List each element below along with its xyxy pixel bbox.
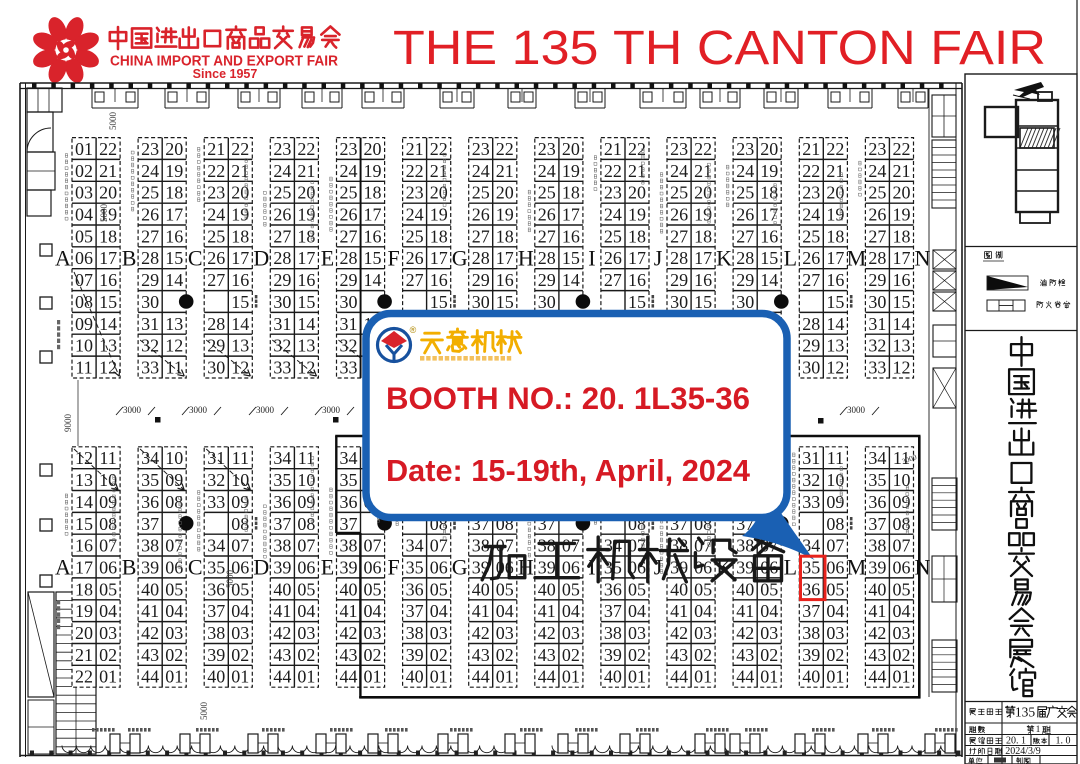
svg-text:15: 15 (430, 292, 448, 312)
svg-text:17: 17 (231, 248, 249, 268)
svg-text:25: 25 (273, 183, 291, 203)
svg-text:29: 29 (802, 336, 820, 356)
svg-text:02: 02 (364, 645, 382, 665)
svg-text:37: 37 (604, 601, 622, 621)
svg-text:27: 27 (868, 226, 886, 246)
svg-text:25: 25 (604, 226, 622, 246)
svg-text:18: 18 (628, 226, 646, 246)
svg-text:K: K (716, 246, 732, 271)
svg-text:17: 17 (430, 248, 448, 268)
svg-text:23: 23 (736, 139, 754, 159)
svg-text:D: D (253, 246, 269, 271)
svg-text:M: M (847, 555, 867, 580)
svg-text:J: J (654, 246, 663, 271)
svg-text:37: 37 (273, 514, 291, 534)
svg-text:01: 01 (364, 667, 382, 687)
svg-text:10: 10 (231, 470, 249, 490)
svg-text:12: 12 (165, 336, 183, 356)
svg-text:03: 03 (826, 623, 844, 643)
svg-text:09: 09 (165, 470, 183, 490)
svg-text:07: 07 (893, 536, 911, 556)
svg-text:3000: 3000 (123, 405, 142, 415)
svg-text:17: 17 (75, 557, 93, 577)
svg-text:12: 12 (75, 448, 93, 468)
svg-text:24: 24 (868, 161, 886, 181)
svg-text:04: 04 (826, 601, 844, 621)
svg-text:41: 41 (273, 601, 291, 621)
svg-text:06: 06 (364, 557, 382, 577)
svg-text:14: 14 (826, 314, 844, 334)
svg-text:26: 26 (472, 205, 490, 225)
svg-text:04: 04 (75, 205, 93, 225)
svg-text:20: 20 (562, 139, 580, 159)
svg-text:18: 18 (75, 579, 93, 599)
svg-text:N: N (915, 246, 931, 271)
svg-text:35: 35 (207, 557, 225, 577)
svg-text:09: 09 (75, 314, 93, 334)
svg-text:18: 18 (562, 183, 580, 203)
svg-text:21: 21 (604, 139, 622, 159)
svg-text:25: 25 (141, 183, 159, 203)
svg-text:05: 05 (99, 579, 117, 599)
svg-text:30: 30 (472, 292, 490, 312)
svg-text:44: 44 (472, 667, 490, 687)
svg-text:04: 04 (364, 601, 382, 621)
svg-text:22: 22 (231, 139, 249, 159)
svg-text:22: 22 (496, 139, 514, 159)
svg-text:5000: 5000 (99, 204, 109, 223)
svg-text:M: M (847, 246, 867, 271)
svg-text:24: 24 (538, 161, 556, 181)
svg-text:05: 05 (694, 579, 712, 599)
svg-text:29: 29 (273, 270, 291, 290)
svg-text:28: 28 (472, 248, 490, 268)
svg-text:26: 26 (207, 248, 225, 268)
svg-text:06: 06 (826, 557, 844, 577)
svg-text:11: 11 (827, 448, 844, 468)
svg-text:23: 23 (141, 139, 159, 159)
svg-text:3000: 3000 (189, 405, 208, 415)
svg-text:04: 04 (760, 601, 778, 621)
svg-text:40: 40 (207, 667, 225, 687)
svg-text:26: 26 (141, 205, 159, 225)
svg-text:19: 19 (75, 601, 93, 621)
svg-text:40: 40 (538, 579, 556, 599)
svg-text:22: 22 (297, 139, 315, 159)
svg-text:44: 44 (538, 667, 556, 687)
svg-text:43: 43 (273, 645, 291, 665)
svg-text:17: 17 (628, 248, 646, 268)
svg-text:24: 24 (141, 161, 159, 181)
svg-text:24: 24 (736, 161, 754, 181)
svg-text:01: 01 (760, 667, 778, 687)
svg-text:F: F (387, 555, 399, 580)
svg-text:16: 16 (826, 270, 844, 290)
svg-text:14: 14 (75, 492, 93, 512)
svg-text:25: 25 (207, 226, 225, 246)
svg-text:02: 02 (297, 645, 315, 665)
svg-text:20. 1: 20. 1 (1006, 736, 1026, 747)
svg-text:15: 15 (75, 514, 93, 534)
svg-text:H: H (518, 246, 534, 271)
svg-text:Since 1957: Since 1957 (193, 67, 258, 81)
svg-text:32: 32 (207, 470, 225, 490)
svg-text:03: 03 (165, 623, 183, 643)
svg-text:29: 29 (736, 270, 754, 290)
svg-text:43: 43 (736, 645, 754, 665)
svg-text:37: 37 (802, 601, 820, 621)
svg-text:02: 02 (628, 645, 646, 665)
svg-text:I: I (588, 246, 595, 271)
svg-text:35: 35 (273, 470, 291, 490)
svg-text:28: 28 (340, 248, 358, 268)
svg-text:28: 28 (670, 248, 688, 268)
svg-text:20: 20 (760, 139, 778, 159)
svg-text:23: 23 (538, 139, 556, 159)
svg-text:14: 14 (893, 314, 911, 334)
svg-text:39: 39 (868, 557, 886, 577)
svg-text:07: 07 (364, 536, 382, 556)
svg-text:25: 25 (538, 183, 556, 203)
svg-text:01: 01 (562, 667, 580, 687)
svg-text:14: 14 (231, 314, 249, 334)
svg-text:27: 27 (340, 226, 358, 246)
svg-text:31: 31 (141, 314, 159, 334)
svg-text:19: 19 (165, 161, 183, 181)
svg-text:16: 16 (430, 270, 448, 290)
svg-text:23: 23 (340, 139, 358, 159)
svg-text:30: 30 (802, 358, 820, 378)
svg-text:26: 26 (868, 205, 886, 225)
svg-text:22: 22 (694, 139, 712, 159)
svg-text:09: 09 (231, 492, 249, 512)
svg-text:02: 02 (99, 645, 117, 665)
svg-text:18: 18 (826, 226, 844, 246)
svg-text:40: 40 (604, 667, 622, 687)
svg-text:19: 19 (430, 205, 448, 225)
svg-text:02: 02 (430, 645, 448, 665)
svg-text:19: 19 (231, 205, 249, 225)
svg-text:02: 02 (165, 645, 183, 665)
svg-text:36: 36 (340, 492, 358, 512)
svg-text:23: 23 (868, 139, 886, 159)
svg-text:17: 17 (826, 248, 844, 268)
svg-text:07: 07 (562, 536, 580, 556)
svg-text:42: 42 (472, 623, 490, 643)
svg-text:38: 38 (538, 536, 556, 556)
svg-text:40: 40 (340, 579, 358, 599)
svg-text:01: 01 (75, 139, 93, 159)
svg-text:21: 21 (430, 161, 448, 181)
svg-text:16: 16 (694, 270, 712, 290)
svg-text:THE 135 TH CANTON FAIR: THE 135 TH CANTON FAIR (393, 22, 1046, 75)
svg-text:30: 30 (736, 292, 754, 312)
svg-text:23: 23 (472, 139, 490, 159)
svg-text:20: 20 (430, 183, 448, 203)
svg-text:38: 38 (802, 623, 820, 643)
svg-text:05: 05 (496, 579, 514, 599)
svg-text:03: 03 (893, 623, 911, 643)
svg-text:34: 34 (207, 536, 225, 556)
svg-text:27: 27 (207, 270, 225, 290)
svg-text:13: 13 (99, 336, 117, 356)
svg-text:27: 27 (472, 226, 490, 246)
svg-text:03: 03 (760, 623, 778, 643)
svg-text:43: 43 (472, 645, 490, 665)
svg-text:06: 06 (165, 557, 183, 577)
svg-text:02: 02 (562, 645, 580, 665)
svg-text:06: 06 (562, 557, 580, 577)
svg-text:27: 27 (604, 270, 622, 290)
svg-text:E: E (321, 246, 334, 271)
svg-text:19: 19 (826, 205, 844, 225)
svg-text:20: 20 (496, 183, 514, 203)
svg-text:40: 40 (406, 667, 424, 687)
svg-text:38: 38 (406, 623, 424, 643)
svg-text:39: 39 (406, 645, 424, 665)
svg-text:32: 32 (141, 336, 159, 356)
svg-text:05: 05 (893, 579, 911, 599)
svg-text:12: 12 (826, 358, 844, 378)
svg-text:11: 11 (75, 358, 92, 378)
svg-text:33: 33 (141, 358, 159, 378)
svg-text:21: 21 (496, 161, 514, 181)
svg-text:24: 24 (273, 161, 291, 181)
svg-text:5000: 5000 (199, 702, 209, 721)
svg-text:24: 24 (406, 205, 424, 225)
svg-text:18: 18 (430, 226, 448, 246)
svg-text:28: 28 (273, 248, 291, 268)
svg-text:01: 01 (826, 667, 844, 687)
svg-text:03: 03 (430, 623, 448, 643)
svg-text:42: 42 (868, 623, 886, 643)
svg-text:37: 37 (868, 514, 886, 534)
svg-text:33: 33 (868, 358, 886, 378)
svg-text:18: 18 (694, 226, 712, 246)
svg-text:32: 32 (802, 470, 820, 490)
svg-text:G: G (452, 555, 468, 580)
svg-text:3000: 3000 (322, 405, 341, 415)
svg-text:39: 39 (538, 557, 556, 577)
svg-text:22: 22 (406, 161, 424, 181)
svg-text:L: L (784, 555, 797, 580)
svg-text:1: 1 (1036, 725, 1041, 735)
svg-text:43: 43 (538, 645, 556, 665)
svg-text:42: 42 (141, 623, 159, 643)
svg-text:15: 15 (628, 292, 646, 312)
svg-text:36: 36 (868, 492, 886, 512)
svg-text:10: 10 (893, 470, 911, 490)
svg-text:35: 35 (406, 557, 424, 577)
svg-text:03: 03 (562, 623, 580, 643)
svg-text:38: 38 (736, 536, 754, 556)
svg-text:19: 19 (364, 161, 382, 181)
svg-text:03: 03 (297, 623, 315, 643)
svg-text:11: 11 (298, 448, 315, 468)
svg-text:36: 36 (207, 579, 225, 599)
svg-text:17: 17 (694, 248, 712, 268)
svg-text:43: 43 (670, 645, 688, 665)
svg-text:09: 09 (893, 492, 911, 512)
svg-text:21: 21 (802, 139, 820, 159)
svg-text:15: 15 (364, 248, 382, 268)
svg-text:31: 31 (207, 448, 225, 468)
svg-text:16: 16 (760, 226, 778, 246)
svg-text:21: 21 (406, 139, 424, 159)
svg-text:20: 20 (628, 183, 646, 203)
svg-text:31: 31 (273, 314, 291, 334)
svg-text:35: 35 (802, 557, 820, 577)
svg-text:01: 01 (893, 667, 911, 687)
svg-text:24: 24 (472, 161, 490, 181)
svg-text:33: 33 (340, 358, 358, 378)
svg-text:02: 02 (496, 645, 514, 665)
svg-text:3000: 3000 (847, 405, 866, 415)
svg-text:26: 26 (538, 205, 556, 225)
svg-text:40: 40 (472, 579, 490, 599)
svg-text:39: 39 (141, 557, 159, 577)
svg-text:04: 04 (297, 601, 315, 621)
svg-text:44: 44 (340, 667, 358, 687)
svg-text:26: 26 (273, 205, 291, 225)
svg-text:07: 07 (430, 536, 448, 556)
svg-text:18: 18 (99, 226, 117, 246)
svg-text:25: 25 (670, 183, 688, 203)
svg-text:®: ® (410, 325, 417, 335)
svg-text:38: 38 (604, 623, 622, 643)
svg-text:01: 01 (430, 667, 448, 687)
svg-text:L: L (784, 246, 797, 271)
svg-text:28: 28 (207, 314, 225, 334)
svg-text:30: 30 (141, 292, 159, 312)
svg-text:30: 30 (273, 292, 291, 312)
svg-text:26: 26 (670, 205, 688, 225)
svg-text:17: 17 (99, 248, 117, 268)
svg-text:39: 39 (802, 645, 820, 665)
svg-text:32: 32 (340, 336, 358, 356)
svg-text:21: 21 (231, 161, 249, 181)
svg-text:04: 04 (99, 601, 117, 621)
svg-text:10: 10 (75, 336, 93, 356)
svg-text:33: 33 (207, 492, 225, 512)
svg-text:40: 40 (802, 667, 820, 687)
svg-text:13: 13 (231, 336, 249, 356)
svg-text:15: 15 (297, 292, 315, 312)
svg-text:27: 27 (736, 226, 754, 246)
svg-text:01: 01 (165, 667, 183, 687)
svg-text:01: 01 (231, 667, 249, 687)
svg-text:17: 17 (364, 205, 382, 225)
svg-text:11: 11 (99, 448, 116, 468)
svg-text:A: A (55, 246, 71, 271)
svg-text:42: 42 (340, 623, 358, 643)
svg-text:21: 21 (826, 161, 844, 181)
svg-text:29: 29 (472, 270, 490, 290)
svg-text:44: 44 (141, 667, 159, 687)
svg-text:15: 15 (231, 292, 249, 312)
svg-text:37: 37 (340, 514, 358, 534)
svg-text:42: 42 (670, 623, 688, 643)
svg-text:1. 0: 1. 0 (1056, 736, 1071, 747)
svg-text:13: 13 (297, 336, 315, 356)
svg-text:19: 19 (562, 161, 580, 181)
svg-text:07: 07 (297, 536, 315, 556)
svg-text:14: 14 (760, 270, 778, 290)
svg-text:23: 23 (604, 183, 622, 203)
svg-text:06: 06 (893, 557, 911, 577)
svg-text:C: C (188, 555, 203, 580)
svg-text:18: 18 (231, 226, 249, 246)
svg-text:27: 27 (273, 226, 291, 246)
svg-text:02: 02 (694, 645, 712, 665)
svg-text:5000: 5000 (225, 570, 235, 589)
svg-text:32: 32 (868, 336, 886, 356)
svg-text:15: 15 (496, 292, 514, 312)
svg-text:135: 135 (1015, 705, 1036, 720)
svg-text:05: 05 (826, 579, 844, 599)
svg-text:23: 23 (802, 183, 820, 203)
svg-text:21: 21 (99, 161, 117, 181)
svg-text:39: 39 (207, 645, 225, 665)
svg-text:15: 15 (99, 292, 117, 312)
svg-text:39: 39 (604, 645, 622, 665)
svg-text:22: 22 (99, 139, 117, 159)
svg-text:02: 02 (231, 645, 249, 665)
svg-text:30: 30 (207, 358, 225, 378)
svg-text:25: 25 (472, 183, 490, 203)
svg-text:40: 40 (273, 579, 291, 599)
svg-text:05: 05 (562, 579, 580, 599)
svg-text:29: 29 (207, 336, 225, 356)
svg-text:26: 26 (604, 248, 622, 268)
svg-text:41: 41 (670, 601, 688, 621)
svg-text:35: 35 (340, 470, 358, 490)
svg-text:04: 04 (165, 601, 183, 621)
svg-text:41: 41 (340, 601, 358, 621)
svg-text:40: 40 (868, 579, 886, 599)
svg-text:27: 27 (538, 226, 556, 246)
svg-text:31: 31 (340, 314, 358, 334)
svg-text:05: 05 (364, 579, 382, 599)
svg-text:28: 28 (736, 248, 754, 268)
svg-text:44: 44 (670, 667, 688, 687)
svg-text:A: A (55, 555, 71, 580)
svg-text:04: 04 (430, 601, 448, 621)
svg-text:25: 25 (868, 183, 886, 203)
svg-text:24: 24 (802, 205, 820, 225)
svg-text:01: 01 (496, 667, 514, 687)
svg-text:23: 23 (406, 183, 424, 203)
svg-text:39: 39 (736, 557, 754, 577)
svg-text:38: 38 (340, 536, 358, 556)
svg-text:21: 21 (207, 139, 225, 159)
svg-text:24: 24 (670, 161, 688, 181)
svg-text:16: 16 (75, 536, 93, 556)
svg-text:21: 21 (75, 645, 93, 665)
svg-text:E: E (321, 555, 334, 580)
svg-text:20: 20 (75, 623, 93, 643)
svg-text:15: 15 (826, 292, 844, 312)
svg-text:03: 03 (364, 623, 382, 643)
svg-text:BOOTH NO.: 20. 1L35-36: BOOTH NO.: 20. 1L35-36 (386, 380, 750, 416)
svg-text:10: 10 (165, 448, 183, 468)
svg-text:C: C (188, 246, 203, 271)
svg-text:3000: 3000 (256, 405, 275, 415)
svg-text:13: 13 (893, 336, 911, 356)
svg-text:27: 27 (141, 226, 159, 246)
svg-text:05: 05 (75, 226, 93, 246)
svg-text:22: 22 (604, 161, 622, 181)
